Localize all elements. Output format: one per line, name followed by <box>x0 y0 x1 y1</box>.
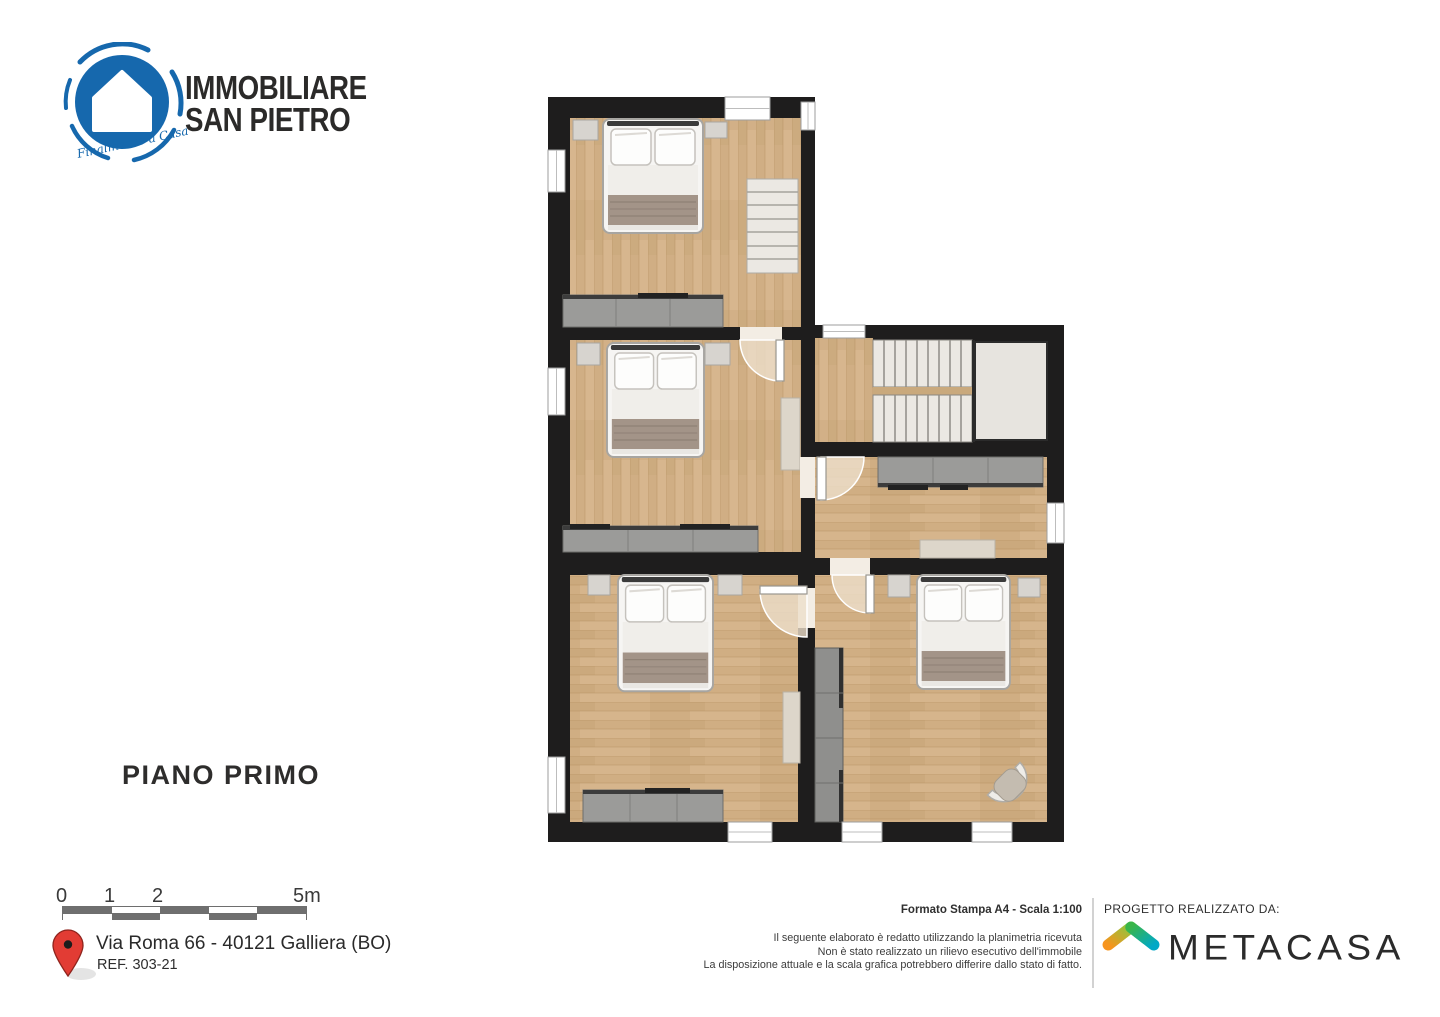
agency-name-line1: IMMOBILIARE <box>185 72 367 104</box>
bed-icon <box>607 343 704 457</box>
bench-icon <box>920 540 995 558</box>
nightstand-icon <box>573 120 598 140</box>
dresser-icon <box>563 524 758 552</box>
stair-landing <box>975 342 1047 440</box>
nightstand-icon <box>888 575 910 597</box>
dresser-icon <box>583 788 723 822</box>
scale-label-0: 0 <box>56 885 67 908</box>
credits-label: PROGETTO REALIZZATO DA: <box>1104 902 1280 916</box>
wardrobe-icon <box>815 648 843 822</box>
sideboard-icon <box>878 457 1043 490</box>
metacasa-logo-icon <box>1102 921 1160 979</box>
nightstand-icon <box>1018 578 1040 597</box>
floor-stair-strip <box>815 338 873 442</box>
map-pin-icon <box>50 928 100 984</box>
floor-plan <box>540 90 1070 850</box>
scale-bar <box>62 906 307 920</box>
page: Finalmente a Casa IMMOBILIARE SAN PIETRO <box>0 0 1440 1017</box>
agency-name-line2: SAN PIETRO <box>185 104 367 136</box>
property-address: Via Roma 66 - 40121 Galliera (BO) <box>96 933 391 955</box>
disclaimer-line-1: Il seguente elaborato è redatto utilizza… <box>620 932 1082 946</box>
scale-bar-row-bottom <box>63 913 306 919</box>
print-format-line: Formato Stampa A4 - Scala 1:100 <box>620 904 1082 916</box>
property-reference: REF. 303-21 <box>97 957 178 973</box>
scale-label-1: 1 <box>104 885 115 908</box>
nightstand-icon <box>705 343 730 365</box>
agency-name: IMMOBILIARE SAN PIETRO <box>185 72 367 136</box>
nightstand-icon <box>577 343 600 365</box>
bed-icon <box>603 119 703 233</box>
bed-icon <box>917 575 1010 689</box>
wall-cabinet-icon <box>783 692 800 763</box>
metacasa-company-name: METACASA <box>1168 928 1405 968</box>
wall-cabinet-icon <box>781 398 800 470</box>
nightstand-icon <box>705 122 727 138</box>
footer-divider <box>1092 898 1094 988</box>
dresser-icon <box>563 293 723 327</box>
floor-plan-title: PIANO PRIMO <box>122 760 320 791</box>
agency-logo-icon: Finalmente a Casa <box>60 42 190 177</box>
disclaimer-line-2: Non è stato realizzato un rilievo esecut… <box>620 946 1082 960</box>
disclaimer-line-3: La disposizione attuale e la scala grafi… <box>620 959 1082 973</box>
print-info: Formato Stampa A4 - Scala 1:100 Il segue… <box>620 904 1082 973</box>
nightstand-icon <box>718 575 742 595</box>
bed-icon <box>618 575 713 691</box>
staircase-straight-icon <box>747 179 798 273</box>
staircase-double-flight-icon <box>873 340 1047 442</box>
scale-label-5m: 5m <box>293 885 321 908</box>
scale-label-2: 2 <box>152 885 163 908</box>
nightstand-icon <box>588 575 610 595</box>
scale-bar-row-top <box>63 907 306 913</box>
